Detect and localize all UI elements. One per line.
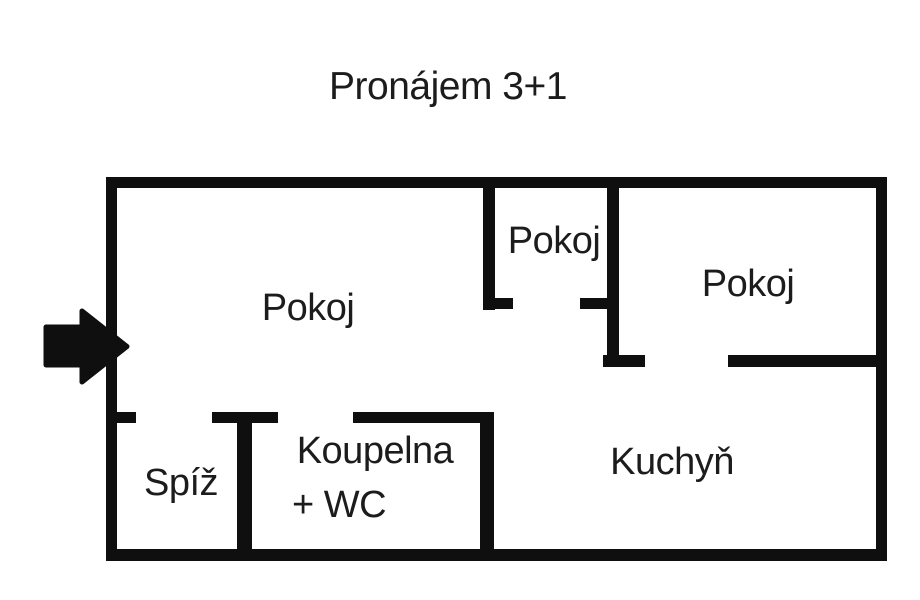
wall-tbar-top: [212, 412, 278, 423]
wall-spiz-koupelna-divider: [237, 423, 252, 549]
room-label-pokoj-right: Pokoj: [702, 265, 795, 303]
room-label-pokoj-small: Pokoj: [508, 222, 601, 260]
wall-koupelna-right: [480, 412, 494, 549]
wall-pokoj-right-bottom: [728, 355, 876, 367]
room-label-koupelna-line1: Koupelna: [297, 432, 454, 470]
page-title: Pronájem 3+1: [329, 65, 567, 109]
wall-outer-top: [106, 177, 887, 188]
wall-koupelna-top: [353, 412, 494, 423]
wall-kuchyn-top-left-foot: [603, 355, 645, 367]
wall-small-room-right-jamb: [580, 298, 607, 309]
wall-small-room-right: [607, 185, 619, 367]
wall-outer-right: [876, 177, 887, 561]
wall-outer-bottom: [106, 549, 887, 561]
wall-small-room-left-jamb: [495, 298, 513, 309]
room-label-pokoj-large: Pokoj: [262, 289, 355, 327]
wall-small-room-left: [483, 185, 495, 310]
room-label-kuchyn: Kuchyň: [610, 443, 734, 481]
entrance-arrow-icon: [43, 308, 130, 385]
room-label-spiz: Spíž: [144, 464, 218, 502]
floorplan-canvas: Pronájem 3+1 Pokoj Pokoj Pokoj Spíž Koup…: [0, 0, 920, 600]
room-label-koupelna-line2: + WC: [292, 486, 386, 524]
wall-spiz-top-stub: [106, 412, 136, 423]
